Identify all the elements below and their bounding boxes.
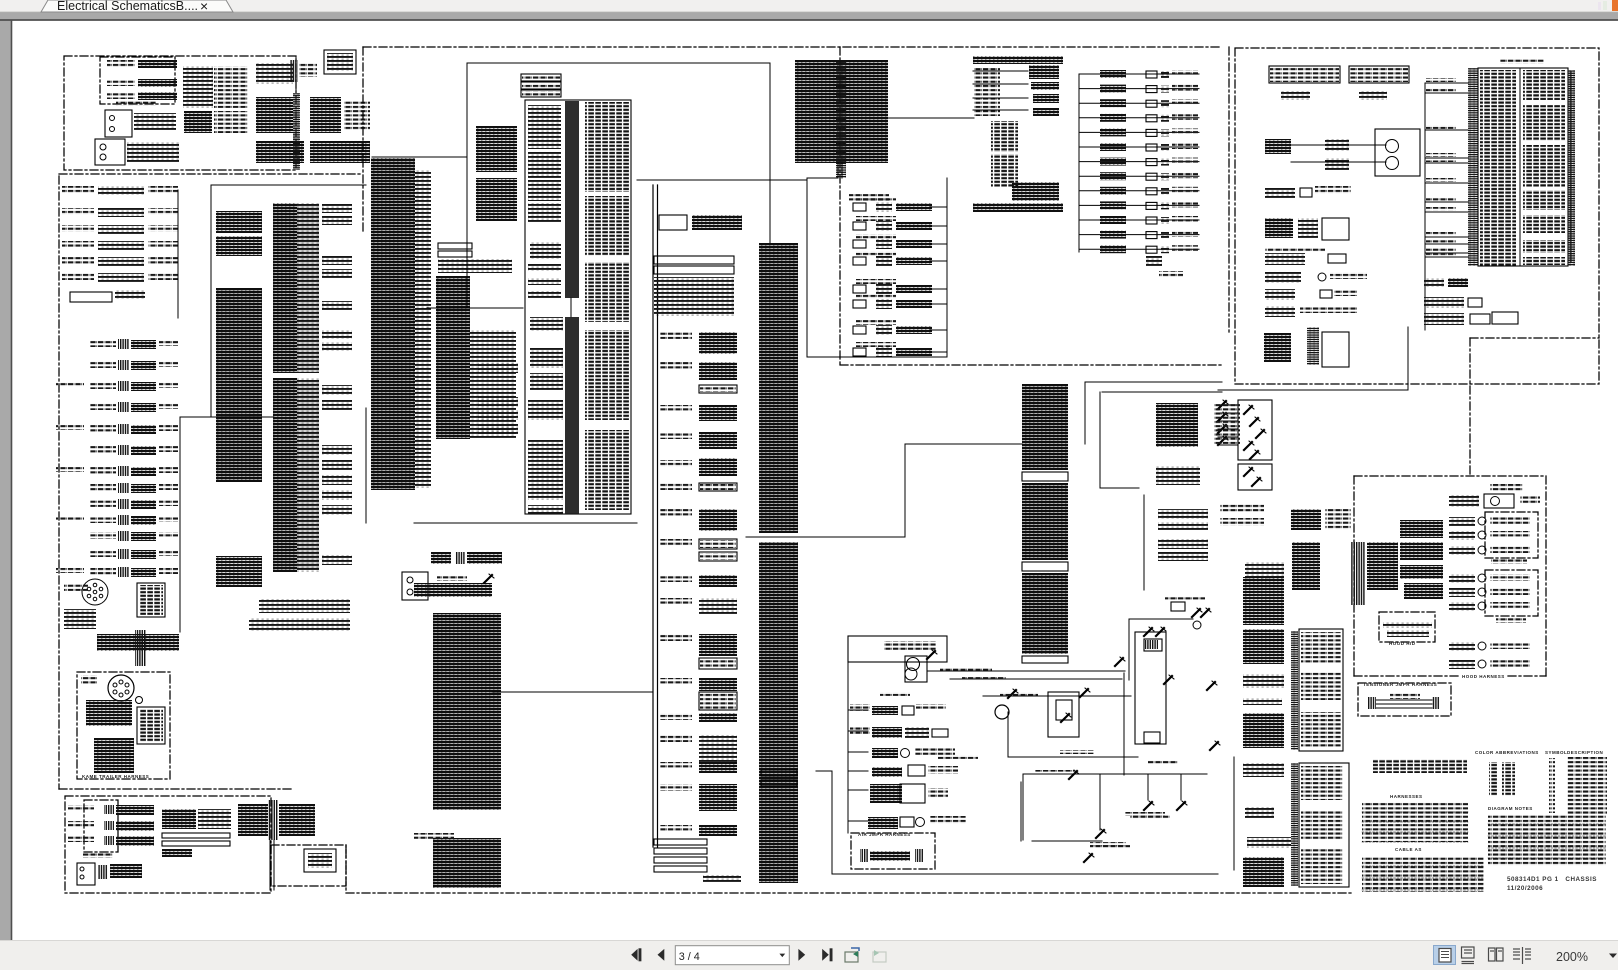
svg-text:DESCRIPTION: DESCRIPTION <box>1567 750 1603 755</box>
svg-text:×: × <box>200 0 208 14</box>
svg-text:3 / 4: 3 / 4 <box>679 951 700 963</box>
svg-text:11/20/2006: 11/20/2006 <box>1507 885 1543 892</box>
svg-text:Electrical SchematicsB....: Electrical SchematicsB.... <box>57 0 198 13</box>
svg-text:200%: 200% <box>1556 950 1588 964</box>
svg-text:AIR JMPR HARNESS: AIR JMPR HARNESS <box>858 832 911 837</box>
svg-text:HOOD HID: HOOD HID <box>1389 641 1416 646</box>
svg-text:HOOD HARNESS: HOOD HARNESS <box>1462 674 1505 679</box>
svg-text:SYMBOL: SYMBOL <box>1545 750 1567 755</box>
svg-text:508314D1 PG 1 CHASSIS: 508314D1 PG 1 CHASSIS <box>1507 876 1597 883</box>
svg-text:DIAGRAM NOTES: DIAGRAM NOTES <box>1488 806 1533 811</box>
svg-text:KAME TRAILER HARNESS: KAME TRAILER HARNESS <box>82 774 149 779</box>
svg-text:TENSIONER JMPR HARNESS: TENSIONER JMPR HARNESS <box>1363 682 1437 687</box>
svg-text:HARNESSES: HARNESSES <box>1390 794 1423 799</box>
svg-text:CABLE AS: CABLE AS <box>1395 847 1422 852</box>
svg-text:COLOR ABBREVIATIONS: COLOR ABBREVIATIONS <box>1475 750 1539 755</box>
